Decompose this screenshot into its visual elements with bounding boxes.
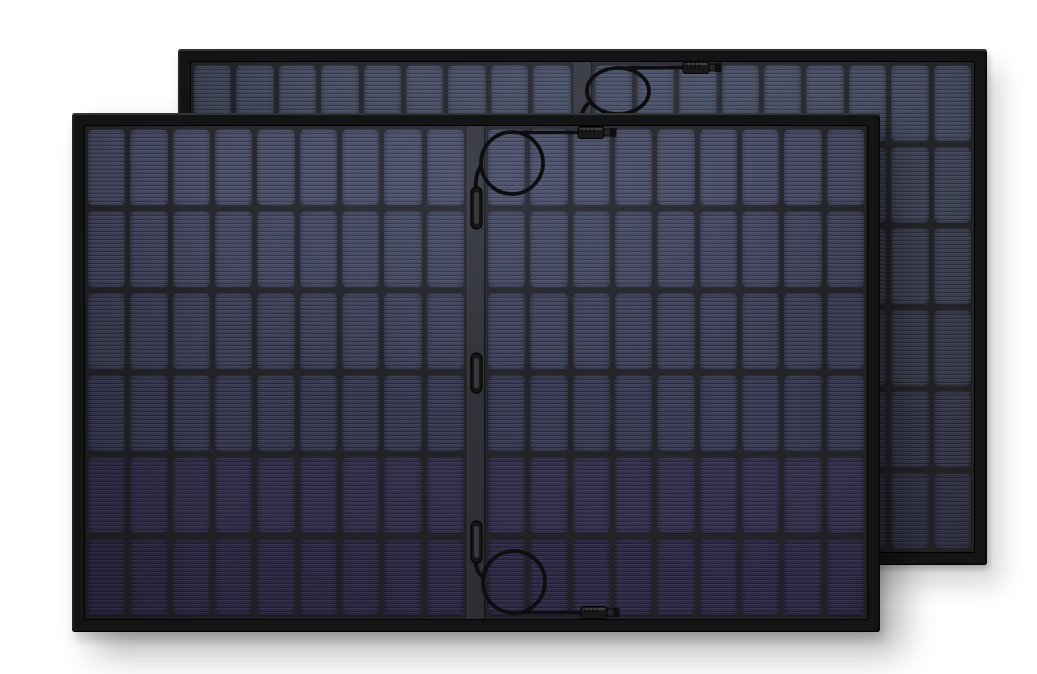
solar-cell — [615, 129, 652, 206]
solar-cell — [427, 211, 464, 288]
solar-cell — [384, 539, 421, 616]
solar-cell — [530, 375, 567, 452]
solar-cell — [342, 211, 379, 288]
solar-cell — [891, 391, 928, 468]
solar-cell — [173, 457, 210, 534]
solar-cell — [215, 457, 252, 534]
solar-cell — [784, 293, 821, 370]
solar-cell — [827, 211, 864, 288]
solar-cell — [891, 310, 928, 387]
solar-cell — [657, 293, 694, 370]
solar-cell — [88, 457, 125, 534]
solar-cell — [700, 539, 737, 616]
solar-cell — [384, 211, 421, 288]
solar-cell — [657, 129, 694, 206]
solar-cell — [342, 375, 379, 452]
solar-cell — [827, 293, 864, 370]
solar-cell — [488, 457, 525, 534]
solar-cell — [173, 129, 210, 206]
solar-cell — [300, 375, 337, 452]
solar-cell — [657, 539, 694, 616]
solar-cell — [827, 375, 864, 452]
solar-cell — [384, 293, 421, 370]
solar-cell — [88, 211, 125, 288]
solar-cell — [300, 457, 337, 534]
solar-cell — [530, 211, 567, 288]
solar-cell — [300, 129, 337, 206]
solar-cell — [573, 211, 610, 288]
solar-cell — [215, 375, 252, 452]
solar-cell — [342, 129, 379, 206]
solar-cell — [615, 211, 652, 288]
solar-cell — [615, 539, 652, 616]
solar-cell — [488, 375, 525, 452]
solar-cell — [427, 539, 464, 616]
solar-cell — [257, 293, 294, 370]
solar-cell — [784, 375, 821, 452]
solar-cell — [530, 293, 567, 370]
solar-cell — [300, 539, 337, 616]
solar-cell — [891, 65, 928, 142]
solar-cell — [934, 65, 971, 142]
solar-cell — [384, 375, 421, 452]
cell-half-right — [485, 126, 867, 619]
solar-cell — [88, 375, 125, 452]
solar-cell — [488, 293, 525, 370]
solar-cell — [257, 457, 294, 534]
solar-cell — [934, 473, 971, 550]
solar-cell — [257, 375, 294, 452]
solar-cell — [742, 375, 779, 452]
solar-cell — [700, 457, 737, 534]
solar-cell — [215, 211, 252, 288]
solar-cell — [257, 129, 294, 206]
solar-cell — [427, 457, 464, 534]
solar-cell — [130, 293, 167, 370]
solar-cell — [300, 293, 337, 370]
solar-cell — [530, 129, 567, 206]
solar-cell — [130, 129, 167, 206]
solar-cell — [215, 293, 252, 370]
solar-cell — [300, 211, 337, 288]
solar-cell — [657, 211, 694, 288]
solar-cell — [742, 457, 779, 534]
solar-cell — [530, 457, 567, 534]
solar-cell — [657, 375, 694, 452]
solar-cell — [530, 539, 567, 616]
product-image-canvas — [0, 0, 1037, 674]
solar-cell — [573, 457, 610, 534]
solar-cell — [130, 211, 167, 288]
solar-cell — [742, 129, 779, 206]
solar-cell — [700, 211, 737, 288]
solar-cell — [488, 129, 525, 206]
solar-cell — [742, 211, 779, 288]
solar-cell — [934, 228, 971, 305]
solar-cell — [573, 129, 610, 206]
solar-cell — [891, 473, 928, 550]
solar-cell — [700, 375, 737, 452]
solar-cell — [784, 211, 821, 288]
solar-cell — [130, 375, 167, 452]
solar-cell — [573, 293, 610, 370]
solar-cell — [827, 539, 864, 616]
solar-cell — [384, 457, 421, 534]
solar-cell — [488, 539, 525, 616]
solar-cell — [88, 129, 125, 206]
solar-cell — [427, 375, 464, 452]
solar-cell — [488, 211, 525, 288]
solar-cell — [615, 293, 652, 370]
solar-cell — [173, 293, 210, 370]
solar-cell — [173, 539, 210, 616]
solar-cell — [784, 539, 821, 616]
solar-cell — [342, 293, 379, 370]
solar-cell — [827, 457, 864, 534]
solar-cell — [215, 129, 252, 206]
solar-cell — [342, 539, 379, 616]
solar-cell — [573, 375, 610, 452]
solar-cell-grid — [85, 126, 867, 619]
solar-cell — [427, 129, 464, 206]
solar-cell — [257, 539, 294, 616]
solar-cell — [573, 539, 610, 616]
solar-cell — [215, 539, 252, 616]
solar-cell — [615, 375, 652, 452]
solar-cell — [742, 539, 779, 616]
solar-cell — [173, 211, 210, 288]
solar-cell — [934, 147, 971, 224]
solar-cell — [891, 147, 928, 224]
solar-cell — [615, 457, 652, 534]
solar-cell — [934, 391, 971, 468]
solar-cell — [257, 211, 294, 288]
solar-cell — [891, 228, 928, 305]
center-junction-rail — [467, 126, 485, 619]
solar-cell — [784, 129, 821, 206]
cell-half-left — [85, 126, 467, 619]
solar-cell — [342, 457, 379, 534]
solar-cell — [700, 293, 737, 370]
solar-cell — [657, 457, 694, 534]
solar-cell — [130, 539, 167, 616]
solar-cell — [742, 293, 779, 370]
solar-cell — [784, 457, 821, 534]
solar-cell — [130, 457, 167, 534]
front-solar-panel — [72, 113, 880, 632]
solar-cell — [88, 539, 125, 616]
solar-cell — [934, 310, 971, 387]
solar-cell — [88, 293, 125, 370]
solar-cell — [700, 129, 737, 206]
solar-cell — [384, 129, 421, 206]
solar-cell — [173, 375, 210, 452]
solar-cell — [827, 129, 864, 206]
solar-cell — [427, 293, 464, 370]
